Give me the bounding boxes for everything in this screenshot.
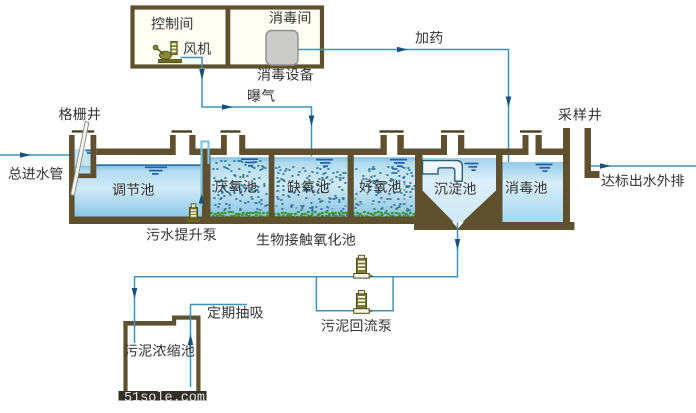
svg-text:51sole.com: 51sole.com	[124, 391, 205, 406]
